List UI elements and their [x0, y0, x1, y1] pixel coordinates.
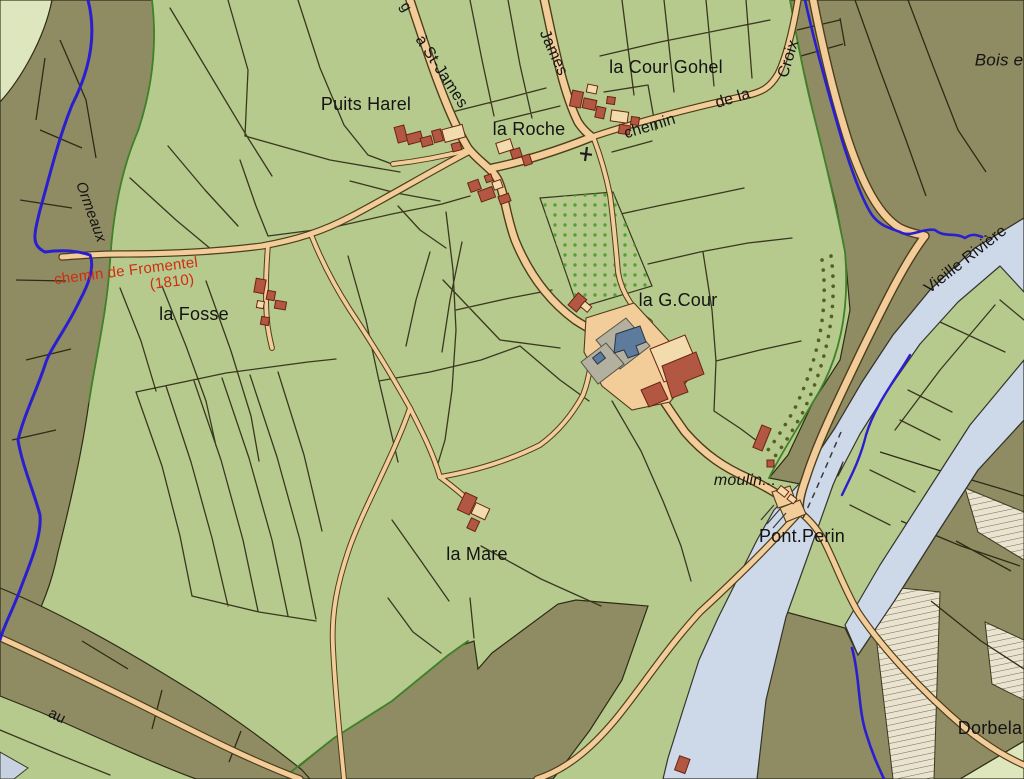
place-label-la-mare: la Mare — [446, 545, 507, 563]
place-label-puits-harel: Puits Harel — [321, 95, 411, 113]
place-label-moulin: moulin... — [714, 473, 776, 489]
place-label-la-roche: la Roche — [493, 120, 566, 138]
place-label-la-fosse: la Fosse — [159, 305, 229, 323]
place-label-bois: Bois e — [975, 52, 1023, 69]
place-label-la-cour-gohel: la Cour Gohel — [609, 58, 723, 76]
cadastral-map[interactable]: g à St-James James la Cour Gohel Puits H… — [0, 0, 1024, 779]
place-label-dorbela: Dorbela — [958, 719, 1022, 737]
map-canvas — [0, 0, 1024, 779]
place-label-pont-perin: Pont.Perin — [759, 527, 845, 545]
place-label-la-g-cour: la G.Cour — [639, 291, 718, 309]
